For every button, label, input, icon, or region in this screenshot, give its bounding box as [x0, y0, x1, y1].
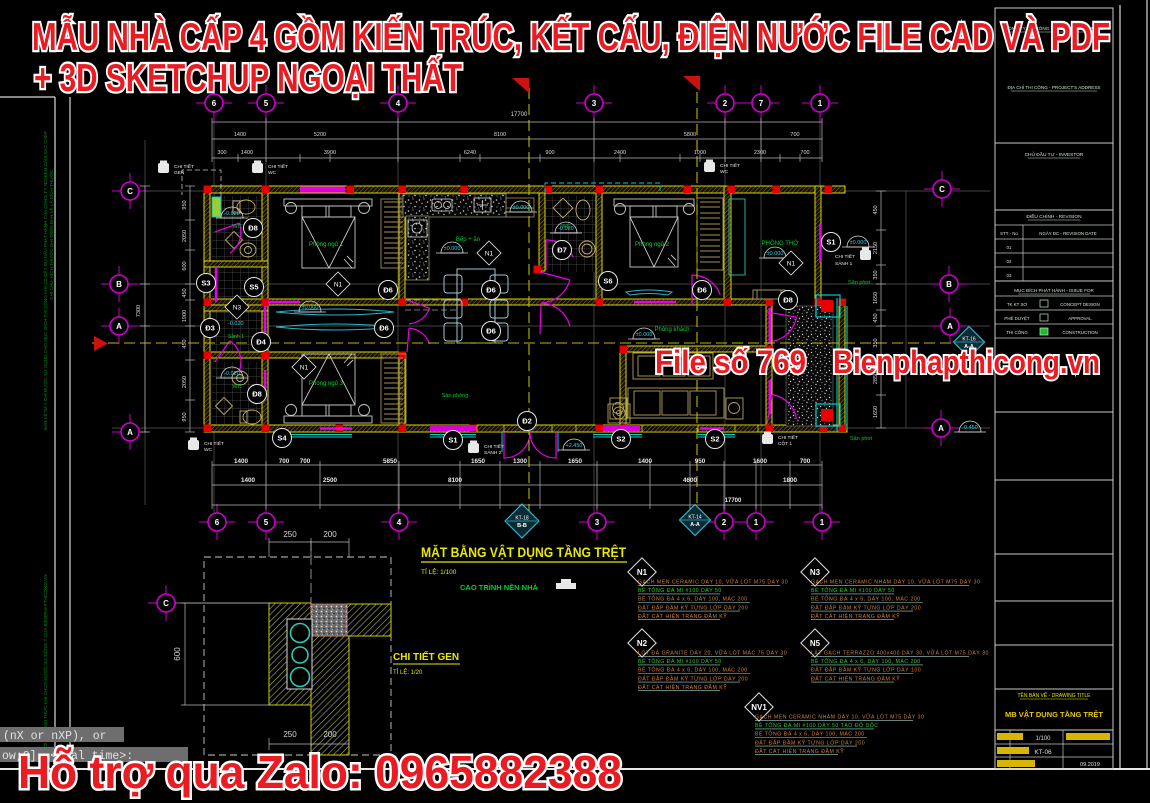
svg-text:900: 900: [545, 150, 554, 156]
svg-text:BÊ TÔNG ĐÁ MI #100 DÀY 50: BÊ TÔNG ĐÁ MI #100 DÀY 50: [638, 657, 722, 665]
svg-text:ĐẤT CÁT HIỆN TRẠNG ĐẦM KỸ: ĐẤT CÁT HIỆN TRẠNG ĐẦM KỸ: [638, 612, 727, 620]
svg-text:N2: N2: [637, 639, 648, 648]
svg-text:ĐIỀU CHỈNH - REVISION: ĐIỀU CHỈNH - REVISION: [1026, 213, 1082, 220]
svg-text:Sảnh 1: Sảnh 1: [228, 334, 244, 340]
svg-text:TK KT SƠ: TK KT SƠ: [1007, 302, 1028, 307]
svg-text:03: 03: [1007, 273, 1012, 278]
svg-text:THI CÔNG: THI CÔNG: [1006, 330, 1028, 335]
svg-text:17700: 17700: [725, 498, 742, 504]
svg-text:1400: 1400: [241, 150, 253, 156]
svg-text:17700: 17700: [511, 112, 528, 118]
svg-text:CHI TIẾT: CHI TIẾT: [204, 440, 224, 447]
svg-text:1400: 1400: [638, 458, 653, 465]
svg-text:Phòng ngủ 2: Phòng ngủ 2: [635, 241, 670, 248]
svg-text:GẠCH MEN CERAMIC NHÁM DÀY 10,: GẠCH MEN CERAMIC NHÁM DÀY 10, VỮA LÓT M7…: [811, 579, 980, 586]
svg-text:B-B: B-B: [517, 523, 527, 529]
svg-text:Đ6: Đ6: [697, 286, 707, 295]
svg-text:BÊ TÔNG ĐÁ MI #100 DÀY 50: BÊ TÔNG ĐÁ MI #100 DÀY 50: [811, 586, 895, 594]
svg-text:6240: 6240: [464, 150, 476, 156]
svg-text:CHI TIẾT: CHI TIẾT: [174, 163, 194, 170]
svg-text:200: 200: [323, 530, 337, 539]
svg-text:NV1: NV1: [751, 703, 767, 712]
svg-text:WC: WC: [232, 224, 241, 230]
svg-text:BÊ TÔNG ĐÁ 4 x 6, DÀY 100, MÁC: BÊ TÔNG ĐÁ 4 x 6, DÀY 100, MÁC 200: [638, 595, 748, 603]
svg-text:Đ8: Đ8: [783, 296, 793, 305]
svg-text:3: 3: [595, 518, 600, 527]
svg-text:Bienphapthicong.vn: Bienphapthicong.vn: [833, 344, 1100, 380]
svg-text:MỤC ĐÍCH PHÁT HÀNH - ISSUE FOR: MỤC ĐÍCH PHÁT HÀNH - ISSUE FOR: [1014, 287, 1094, 293]
svg-text:1: 1: [820, 518, 825, 527]
svg-text:GẠCH MEN CERAMIC NHÁM DÀY 10,: GẠCH MEN CERAMIC NHÁM DÀY 10, VỮA LÓT M7…: [755, 714, 924, 721]
svg-text:Đ6: Đ6: [486, 327, 496, 336]
svg-text:Đ4: Đ4: [256, 338, 266, 347]
svg-text:BÊ TÔNG ĐÁ 4 x 6, DÀY 100, MÁC: BÊ TÔNG ĐÁ 4 x 6, DÀY 100, MÁC 200: [811, 595, 921, 603]
svg-text:File số 769: File số 769: [655, 344, 806, 380]
svg-text:Phòng ngủ 3: Phòng ngủ 3: [309, 380, 344, 387]
svg-text:S6: S6: [603, 277, 612, 286]
svg-text:2: 2: [723, 99, 728, 108]
svg-text:200: 200: [323, 730, 337, 739]
svg-text:450: 450: [873, 313, 879, 322]
svg-text:7300: 7300: [136, 305, 142, 317]
svg-text:1650: 1650: [471, 458, 486, 465]
svg-text:BÊ TÔNG ĐÁ 4 x 6, DÀY 100, MÁC: BÊ TÔNG ĐÁ 4 x 6, DÀY 100, MÁC 200: [638, 666, 748, 674]
svg-text:±0.000: ±0.000: [444, 246, 461, 252]
svg-text:MẪU NHÀ CẤP 4 GỒM KIẾN TRÚC, K: MẪU NHÀ CẤP 4 GỒM KIẾN TRÚC, KẾT CẤU, ĐI…: [32, 15, 1110, 59]
svg-text:2500: 2500: [323, 477, 338, 484]
svg-text:S1: S1: [448, 436, 457, 445]
svg-text:KT-16: KT-16: [962, 337, 976, 343]
svg-text:TỈ LỆ: 1/100: TỈ LỆ: 1/100: [421, 567, 457, 576]
svg-text:ĐẤT CÁT HIỆN TRẠNG ĐẦM KỸ: ĐẤT CÁT HIỆN TRẠNG ĐẦM KỸ: [811, 674, 900, 682]
svg-text:N1: N1: [300, 364, 309, 371]
svg-text:-0.020: -0.020: [224, 211, 240, 217]
svg-text:1400: 1400: [241, 477, 256, 484]
svg-text:KT-06: KT-06: [1034, 749, 1052, 756]
svg-text:N1: N1: [485, 250, 494, 257]
svg-text:Đ2: Đ2: [522, 417, 532, 426]
svg-text:C: C: [939, 185, 945, 194]
svg-text:700: 700: [279, 458, 290, 465]
svg-text:BẢN VẼ NÀY CHỈ ĐƯỢC SỬ DỤNG CH: BẢN VẼ NÀY CHỈ ĐƯỢC SỬ DỤNG CHO MỤC ĐÍCH…: [41, 131, 48, 430]
svg-text:ĐẤT ĐẮP ĐẦM KỸ TỪNG LỚP DÀY 20: ĐẤT ĐẮP ĐẦM KỸ TỪNG LỚP DÀY 200: [811, 603, 921, 611]
svg-text:1800: 1800: [783, 477, 798, 484]
svg-text:1650: 1650: [873, 292, 879, 304]
svg-text:S5: S5: [249, 283, 258, 292]
svg-text:Đ6: Đ6: [383, 286, 393, 295]
svg-text:SẢNH 1: SẢNH 1: [835, 260, 853, 267]
svg-text:CHI TIẾT GEN: CHI TIẾT GEN: [393, 650, 459, 663]
svg-text:(nX or nXP), or: (nX or nXP), or: [3, 730, 107, 743]
svg-text:±0.000: ±0.000: [767, 251, 784, 257]
svg-text:MB VẬT DỤNG TẦNG TRỆT: MB VẬT DỤNG TẦNG TRỆT: [1005, 709, 1103, 719]
svg-text:Đ6: Đ6: [379, 324, 389, 333]
svg-text:2050: 2050: [182, 376, 188, 388]
svg-text:NGÀY ĐC - REVISION DATE: NGÀY ĐC - REVISION DATE: [1039, 231, 1096, 236]
svg-text:Đ7: Đ7: [557, 246, 567, 255]
svg-text:S4: S4: [277, 434, 287, 443]
svg-text:700: 700: [300, 458, 311, 465]
svg-text:1400: 1400: [234, 132, 246, 138]
svg-text:N1: N1: [787, 260, 796, 267]
svg-text:ĐẤT ĐẮP ĐẦM KỸ TỪNG LỚP DÀY 20: ĐẤT ĐẮP ĐẦM KỸ TỪNG LỚP DÀY 200: [638, 674, 748, 682]
svg-text:N1: N1: [334, 281, 343, 288]
svg-text:1000: 1000: [694, 150, 706, 156]
svg-text:A: A: [938, 424, 944, 433]
svg-text:Phòng ngủ 1: Phòng ngủ 1: [309, 241, 344, 248]
svg-text:BÊ TÔNG ĐÁ 4 x 6, DÀY 100, MÁC: BÊ TÔNG ĐÁ 4 x 6, DÀY 100, MÁC 200: [811, 657, 921, 665]
svg-text:1: 1: [754, 518, 759, 527]
svg-text:1/100: 1/100: [1035, 736, 1051, 742]
svg-text:WC: WC: [720, 169, 729, 175]
svg-text:C: C: [127, 187, 133, 196]
svg-text:ĐẤT ĐẮP ĐẦM KỸ TỪNG LỚP DÀY 20: ĐẤT ĐẮP ĐẦM KỸ TỪNG LỚP DÀY 200: [755, 738, 865, 746]
svg-text:2300: 2300: [754, 150, 766, 156]
svg-text:LÓT ĐÁ GRANITE DÀY 20, VỮA LÓT: LÓT ĐÁ GRANITE DÀY 20, VỮA LÓT MÁC 75 DÀ…: [638, 650, 787, 657]
svg-text:WC: WC: [561, 224, 570, 230]
svg-text:700: 700: [800, 458, 811, 465]
svg-text:450: 450: [182, 339, 188, 348]
svg-text:6: 6: [212, 99, 217, 108]
svg-text:-0.450: -0.450: [962, 425, 978, 431]
svg-text:N1: N1: [637, 568, 648, 577]
svg-text:350: 350: [873, 270, 879, 279]
svg-text:PHÒNG THỜ: PHÒNG THỜ: [762, 240, 799, 247]
svg-text:1900: 1900: [182, 310, 188, 322]
svg-text:S2: S2: [616, 435, 625, 444]
svg-text:±0.000: ±0.000: [850, 240, 867, 246]
svg-text:CHI TIẾT: CHI TIẾT: [484, 443, 504, 450]
svg-text:1400: 1400: [234, 458, 249, 465]
svg-text:GEN: GEN: [174, 170, 185, 176]
svg-text:5: 5: [264, 518, 269, 527]
svg-text:950: 950: [182, 412, 188, 421]
svg-text:TÊN BẢN VẼ - DRAWING TITLE: TÊN BẢN VẼ - DRAWING TITLE: [1017, 691, 1091, 699]
svg-text:CAO TRÌNH NỀN NHÀ: CAO TRÌNH NỀN NHÀ: [460, 582, 538, 592]
svg-text:4: 4: [397, 518, 402, 527]
svg-text:1300: 1300: [513, 458, 528, 465]
svg-text:Sân phơi: Sân phơi: [848, 280, 870, 286]
svg-text:MẶT BẰNG VẬT DỤNG TẦNG TRỆT: MẶT BẰNG VẬT DỤNG TẦNG TRỆT: [421, 543, 626, 560]
svg-text:600: 600: [173, 647, 182, 661]
svg-text:A-A: A-A: [690, 522, 700, 528]
svg-text:CHI TIẾT: CHI TIẾT: [720, 162, 740, 169]
svg-text:ĐẤT CÁT HIỆN TRẠNG ĐẦM KỸ: ĐẤT CÁT HIỆN TRẠNG ĐẦM KỸ: [811, 612, 900, 620]
svg-text:BÊ TÔNG ĐÁ 4 x 6, DÀY 100, MÁC: BÊ TÔNG ĐÁ 4 x 6, DÀY 100, MÁC 200: [755, 730, 865, 738]
svg-text:8100: 8100: [494, 132, 506, 138]
svg-text:450: 450: [182, 288, 188, 297]
svg-text:±0.000: ±0.000: [513, 205, 530, 211]
svg-text:2400: 2400: [614, 150, 626, 156]
svg-text:4: 4: [396, 99, 401, 108]
svg-text:950: 950: [695, 458, 706, 465]
svg-text:SẢNH 2: SẢNH 2: [484, 449, 502, 456]
svg-text:950: 950: [182, 200, 188, 209]
svg-text:5800: 5800: [684, 132, 696, 138]
svg-text:S3: S3: [201, 279, 210, 288]
svg-text:APPROVAL: APPROVAL: [1068, 316, 1092, 321]
svg-text:LÁT GẠCH TERRAZZO 400x400 DÀY: LÁT GẠCH TERRAZZO 400x400 DÀY 30, VỮA LÓ…: [811, 650, 989, 657]
svg-text:+2.450: +2.450: [566, 443, 583, 449]
svg-text:1650: 1650: [568, 458, 583, 465]
svg-text:7: 7: [759, 99, 764, 108]
svg-text:-0.020: -0.020: [224, 371, 240, 377]
svg-text:WC: WC: [268, 170, 277, 176]
svg-text:Hỗ trợ qua Zalo: 0965882388: Hỗ trợ qua Zalo: 0965882388: [18, 746, 622, 798]
svg-text:±0.000: ±0.000: [302, 305, 319, 311]
svg-text:6: 6: [215, 518, 220, 527]
svg-text:BÊ TÔNG ĐÁ MI #100 DÀY 50 TẠO: BÊ TÔNG ĐÁ MI #100 DÀY 50 TẠO ĐỘ DỐC: [755, 721, 879, 729]
svg-text:±0.000: ±0.000: [636, 332, 653, 338]
svg-text:2150: 2150: [873, 242, 879, 254]
svg-text:-0.020: -0.020: [228, 321, 244, 327]
svg-text:STT - No: STT - No: [1000, 231, 1018, 236]
svg-text:Phòng khách: Phòng khách: [654, 327, 689, 333]
svg-text:CONSTRUCTION: CONSTRUCTION: [1062, 330, 1097, 335]
svg-text:2: 2: [722, 518, 727, 527]
svg-text:Đ8: Đ8: [252, 390, 262, 399]
svg-text:ĐẤT ĐẮP ĐẦM KỸ TỪNG LỚP DÀY 10: ĐẤT ĐẮP ĐẦM KỸ TỪNG LỚP DÀY 100: [811, 666, 921, 674]
svg-text:450: 450: [873, 205, 879, 214]
svg-text:PHÊ DUYỆT: PHÊ DUYỆT: [1004, 316, 1029, 321]
svg-text:A: A: [116, 322, 122, 331]
svg-text:CHI TIẾT: CHI TIẾT: [835, 253, 855, 260]
svg-text:ĐỊA CHỈ THI CÔNG - PROJECT'S A: ĐỊA CHỈ THI CÔNG - PROJECT'S ADDRESS: [1008, 84, 1101, 90]
svg-text:CHỦ ĐẦU TƯ - INVESTOR: CHỦ ĐẦU TƯ - INVESTOR: [1025, 151, 1084, 158]
svg-text:ĐẤT ĐẮP ĐẦM KỸ TỪNG LỚP DÀY 20: ĐẤT ĐẮP ĐẦM KỸ TỪNG LỚP DÀY 200: [638, 603, 748, 611]
svg-text:300: 300: [217, 150, 226, 156]
svg-text:Sân phơi: Sân phơi: [850, 436, 872, 442]
svg-text:3900: 3900: [324, 150, 336, 156]
svg-text:700: 700: [790, 132, 799, 138]
svg-text:1: 1: [818, 99, 823, 108]
svg-text:250: 250: [283, 530, 297, 539]
svg-text:ĐẤT CÁT HIỆN TRẠNG ĐẦM KỸ: ĐẤT CÁT HIỆN TRẠNG ĐẦM KỸ: [638, 683, 727, 691]
svg-text:B: B: [946, 280, 952, 289]
svg-text:A: A: [947, 322, 953, 331]
svg-text:700: 700: [800, 150, 809, 156]
svg-text:Sàn phòng: Sàn phòng: [442, 393, 469, 399]
svg-text:8100: 8100: [448, 477, 463, 484]
svg-text:5200: 5200: [314, 132, 326, 138]
svg-text:C: C: [163, 599, 169, 608]
svg-text:01: 01: [1007, 245, 1012, 250]
svg-text:KT-14: KT-14: [688, 515, 702, 521]
svg-text:1600: 1600: [753, 458, 768, 465]
svg-text:S2: S2: [710, 435, 719, 444]
svg-text:N3: N3: [810, 568, 821, 577]
svg-text:A: A: [127, 428, 133, 437]
svg-text:GHI CHÚ: KÍCH THƯỚC GHI TRÊN B: GHI CHÚ: KÍCH THƯỚC GHI TRÊN BẢN VẼ LÀ K…: [47, 169, 54, 300]
svg-text:Đ3: Đ3: [205, 324, 215, 333]
svg-text:WC: WC: [204, 447, 213, 453]
svg-text:Bếp + ăn: Bếp + ăn: [456, 237, 480, 243]
svg-text:5: 5: [264, 99, 269, 108]
svg-text:N3: N3: [233, 304, 242, 311]
svg-text:02: 02: [1007, 259, 1012, 264]
svg-text:BÊ TÔNG ĐÁ MI #100 DÀY 50: BÊ TÔNG ĐÁ MI #100 DÀY 50: [638, 586, 722, 594]
svg-text:5850: 5850: [383, 458, 398, 465]
svg-text:N5: N5: [810, 639, 821, 648]
svg-text:250: 250: [283, 730, 297, 739]
svg-text:1650: 1650: [873, 406, 879, 418]
svg-text:09.2019: 09.2019: [1080, 762, 1100, 768]
svg-text:CHI TIẾT: CHI TIẾT: [268, 163, 288, 170]
svg-text:3: 3: [592, 99, 597, 108]
svg-text:+ 3D SKETCHUP NGOẠI THẤT: + 3D SKETCHUP NGOẠI THẤT: [34, 56, 462, 100]
svg-text:S1: S1: [826, 238, 835, 247]
svg-text:600: 600: [182, 261, 188, 270]
svg-text:ĐẤT CÁT HIỆN TRẠNG ĐẦM KỸ: ĐẤT CÁT HIỆN TRẠNG ĐẦM KỸ: [755, 747, 844, 755]
svg-text:2050: 2050: [182, 230, 188, 242]
svg-text:WC: WC: [232, 384, 241, 390]
svg-text:4600: 4600: [683, 477, 698, 484]
svg-text:TỈ LỆ: 1/20: TỈ LỆ: 1/20: [393, 668, 423, 676]
svg-text:CỘT 1: CỘT 1: [778, 440, 792, 447]
svg-text:KT-18: KT-18: [515, 516, 529, 522]
svg-text:CHI TIẾT: CHI TIẾT: [778, 434, 798, 441]
svg-text:GẠCH MEN CERAMIC DÀY 10, VỮA L: GẠCH MEN CERAMIC DÀY 10, VỮA LÓT M75 DÀY…: [638, 579, 788, 586]
svg-text:B: B: [116, 280, 122, 289]
svg-text:CONCEPT DESIGN: CONCEPT DESIGN: [1060, 302, 1099, 307]
svg-text:Đ8: Đ8: [248, 224, 258, 233]
svg-text:Đ6: Đ6: [486, 286, 496, 295]
